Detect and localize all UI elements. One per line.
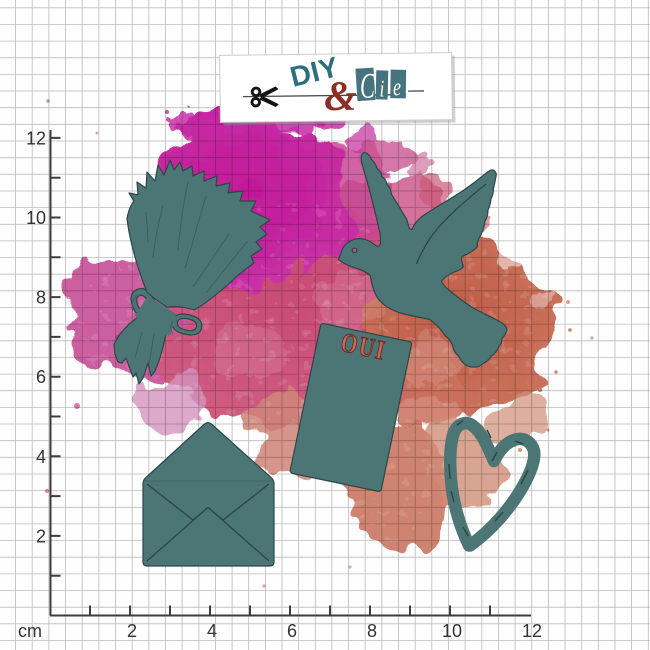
- svg-text:6: 6: [287, 621, 297, 641]
- svg-text:12: 12: [26, 128, 46, 148]
- svg-text:&: &: [324, 74, 358, 120]
- svg-text:C: C: [360, 66, 376, 106]
- svg-text:10: 10: [442, 621, 462, 641]
- svg-text:i: i: [379, 75, 384, 103]
- svg-text:8: 8: [367, 621, 377, 641]
- svg-text:6: 6: [36, 367, 46, 387]
- svg-text:10: 10: [26, 208, 46, 228]
- svg-text:2: 2: [36, 526, 46, 546]
- svg-text:8: 8: [36, 288, 46, 308]
- svg-text:4: 4: [207, 621, 217, 641]
- svg-text:2: 2: [127, 621, 137, 641]
- svg-text:12: 12: [522, 621, 542, 641]
- svg-text:e: e: [393, 73, 402, 101]
- svg-text:4: 4: [36, 447, 46, 467]
- svg-text:cm: cm: [18, 621, 42, 641]
